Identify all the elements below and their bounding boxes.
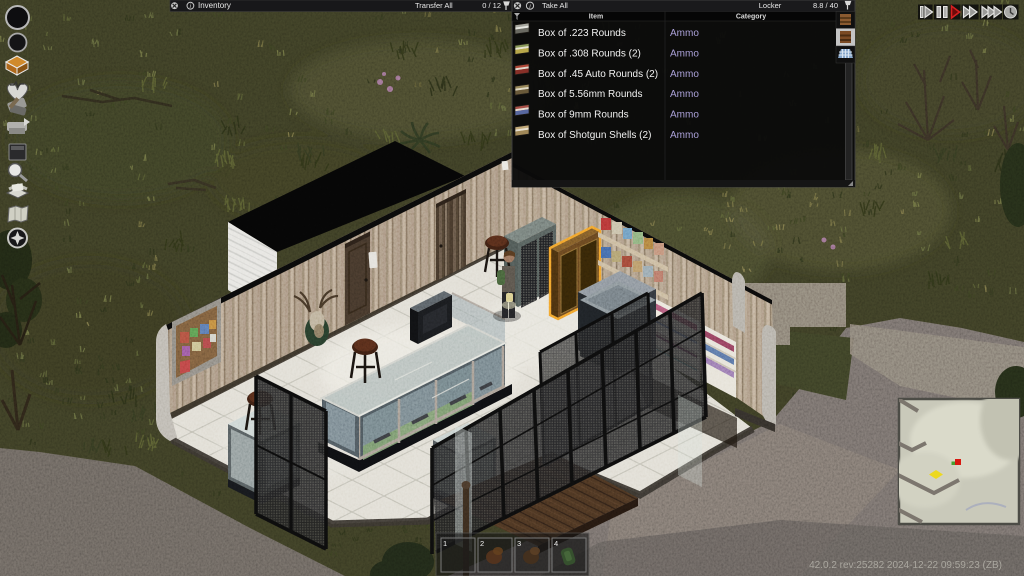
svg-text:0 / 12: 0 / 12 [482,1,501,10]
svg-text:Ammo: Ammo [670,28,699,39]
svg-text:Transfer All: Transfer All [415,1,453,10]
svg-text:Box of .45 Auto Rounds (2): Box of .45 Auto Rounds (2) [538,69,658,80]
svg-text:Item: Item [589,14,603,21]
svg-text:8.8 / 40: 8.8 / 40 [813,1,838,10]
svg-text:Ammo: Ammo [670,69,699,80]
svg-text:Box of .223 Rounds: Box of .223 Rounds [538,28,626,39]
svg-text:Take All: Take All [542,1,568,10]
svg-text:4: 4 [554,539,558,548]
svg-text:Locker: Locker [759,1,782,10]
svg-text:Ammo: Ammo [670,48,699,59]
svg-text:2: 2 [480,539,484,548]
svg-text:Ammo: Ammo [670,89,699,100]
svg-text:Ammo: Ammo [670,130,699,141]
svg-text:Box of 9mm Rounds: Box of 9mm Rounds [538,110,629,121]
svg-text:Ammo: Ammo [670,110,699,121]
svg-text:Box of .308 Rounds (2): Box of .308 Rounds (2) [538,48,641,59]
svg-text:Category: Category [736,14,766,21]
svg-text:Box of Shotgun Shells (2): Box of Shotgun Shells (2) [538,130,651,141]
svg-text:Box of 5.56mm Rounds: Box of 5.56mm Rounds [538,89,643,100]
svg-text:Inventory: Inventory [198,1,231,10]
svg-text:3: 3 [517,539,521,548]
svg-text:1: 1 [443,539,447,548]
svg-text:42.0.2 rev:25282 2024-12-22 0: 42.0.2 rev:25282 2024-12-22 09:59:23 (ZB… [809,560,1002,571]
